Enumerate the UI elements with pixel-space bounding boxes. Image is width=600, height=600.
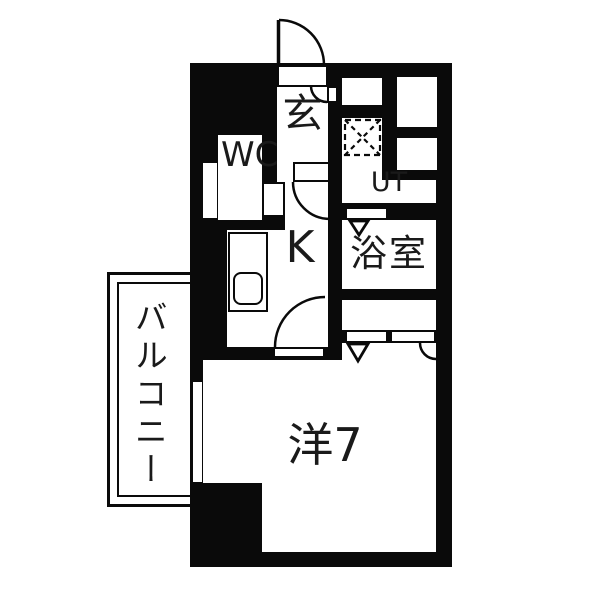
balcony-label: バルコニー [130, 290, 166, 500]
wc-label: WC [221, 136, 259, 175]
hall-door-leaf [293, 162, 330, 182]
utility-shelf-bay [342, 78, 382, 105]
floor-plan: 玄 WC K UT 浴室 洋7 バルコニー [0, 0, 600, 600]
kitchen-door-leaf [273, 347, 325, 358]
pipe-shaft-lower [397, 138, 437, 170]
entrance-door-swing-arc [279, 20, 324, 65]
genkan-label: 玄 [277, 92, 328, 136]
kitchen-label: K [276, 224, 324, 272]
balcony-window [192, 382, 202, 482]
closet-door-panel-right [390, 330, 436, 343]
main-room-label: 洋7 [270, 420, 380, 471]
pipe-shaft-upper [397, 77, 437, 127]
genkan-cabinet-door [327, 86, 338, 103]
bathroom-label: 浴室 [342, 234, 436, 275]
closet-interior [342, 300, 436, 330]
main-room-floor-bottom [262, 483, 436, 552]
wc-door [262, 182, 285, 217]
bathroom-folding-door [345, 207, 388, 220]
kitchen-sink [233, 272, 263, 305]
closet-door-panel-left [345, 330, 388, 343]
utility-label: UT [342, 168, 436, 198]
wc-side-niche [203, 163, 217, 218]
entrance-threshold [277, 65, 328, 87]
